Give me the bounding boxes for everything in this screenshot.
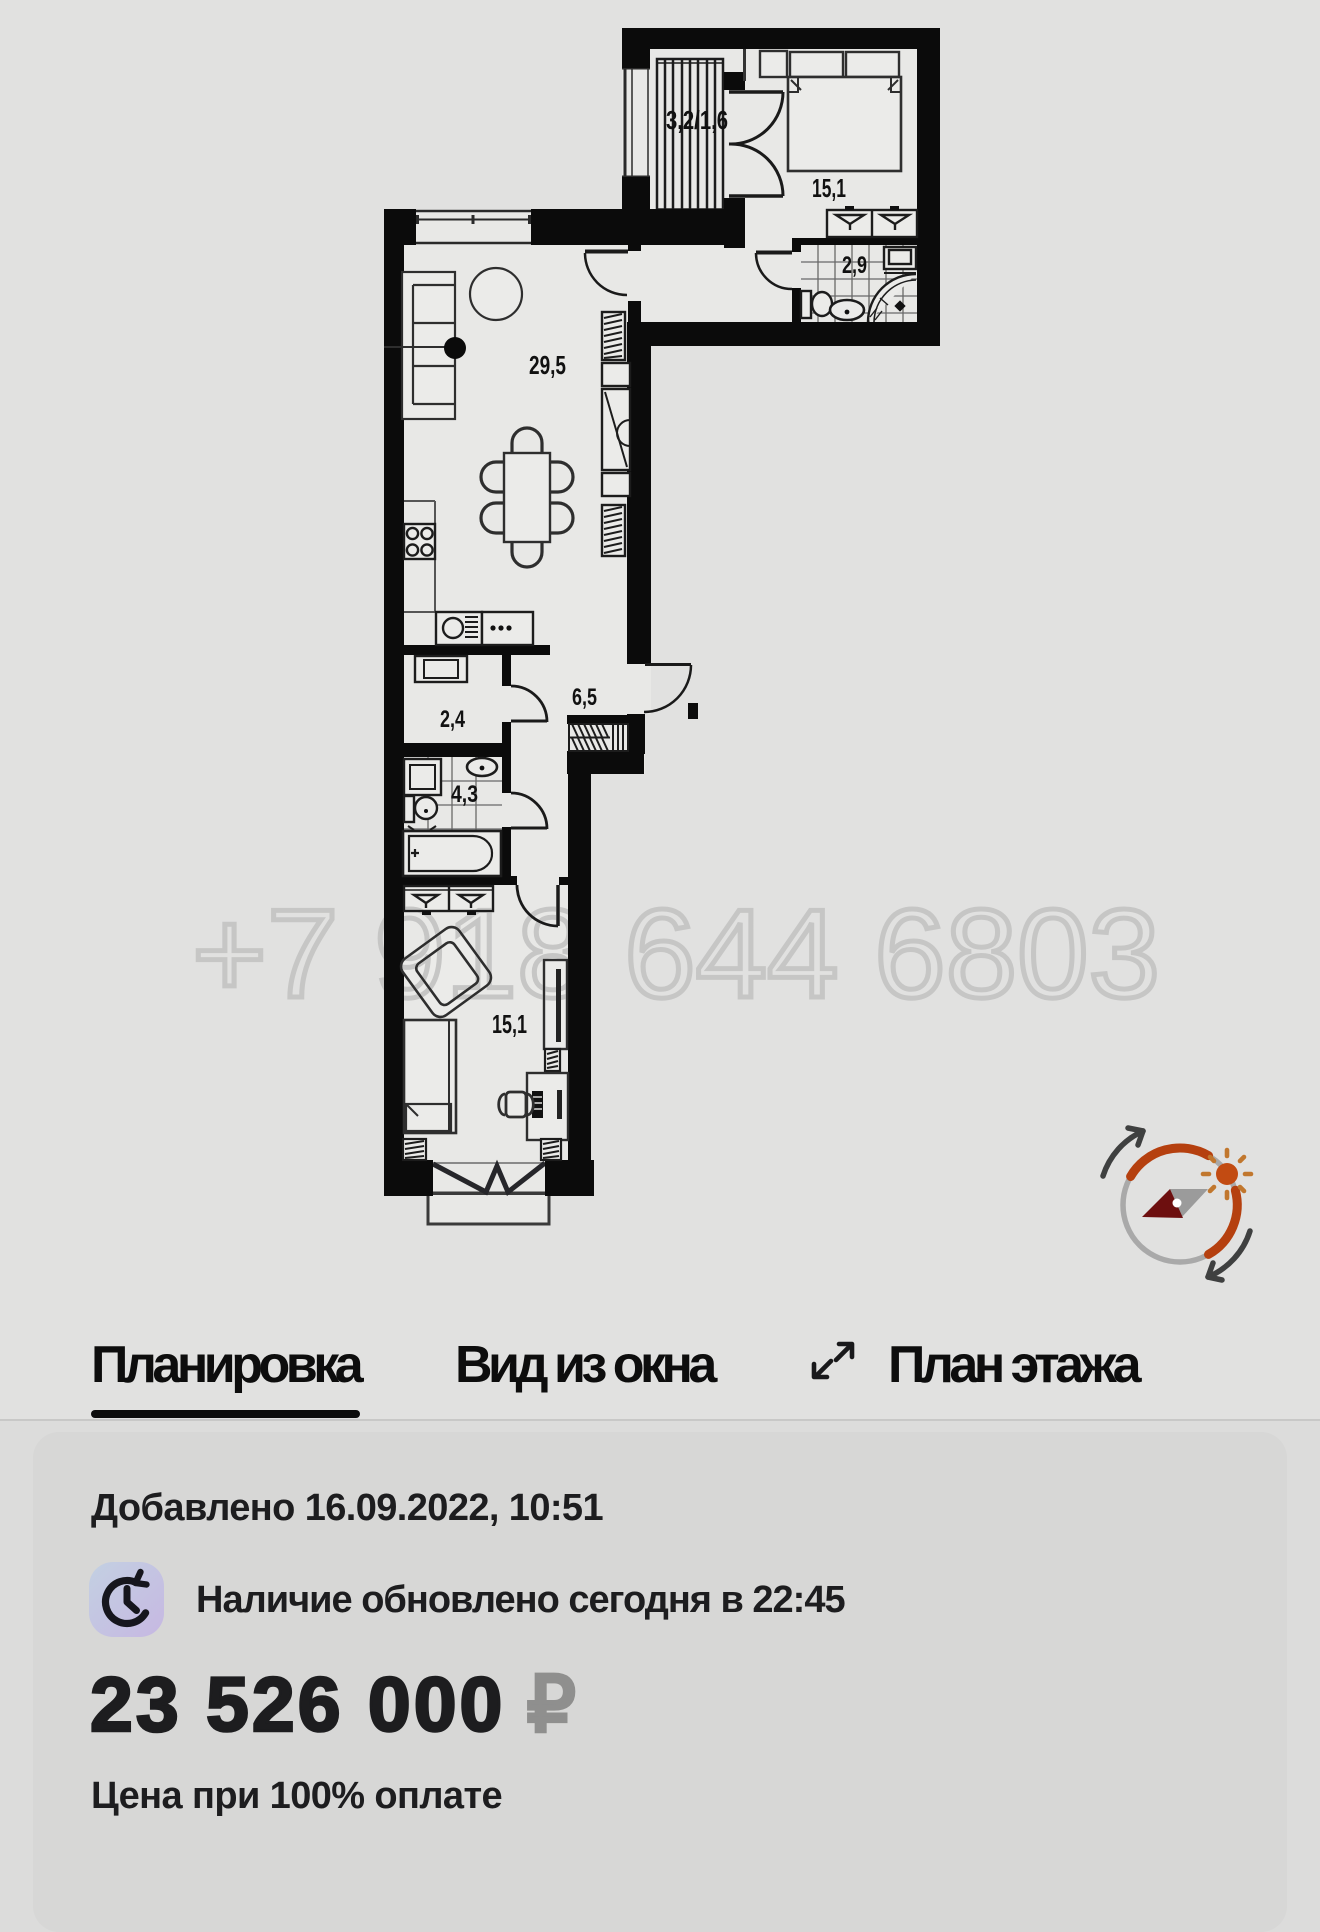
svg-text:6,5: 6,5 [572, 684, 597, 711]
svg-text:+7 918 644 6803: +7 918 644 6803 [192, 883, 1160, 1024]
svg-text:3,2/1,6: 3,2/1,6 [666, 105, 728, 135]
svg-text:2,4: 2,4 [440, 706, 465, 733]
svg-text:4,3: 4,3 [451, 781, 478, 808]
svg-text:15,1: 15,1 [812, 173, 846, 203]
svg-text:2,9: 2,9 [842, 252, 867, 279]
svg-text:29,5: 29,5 [529, 350, 566, 380]
